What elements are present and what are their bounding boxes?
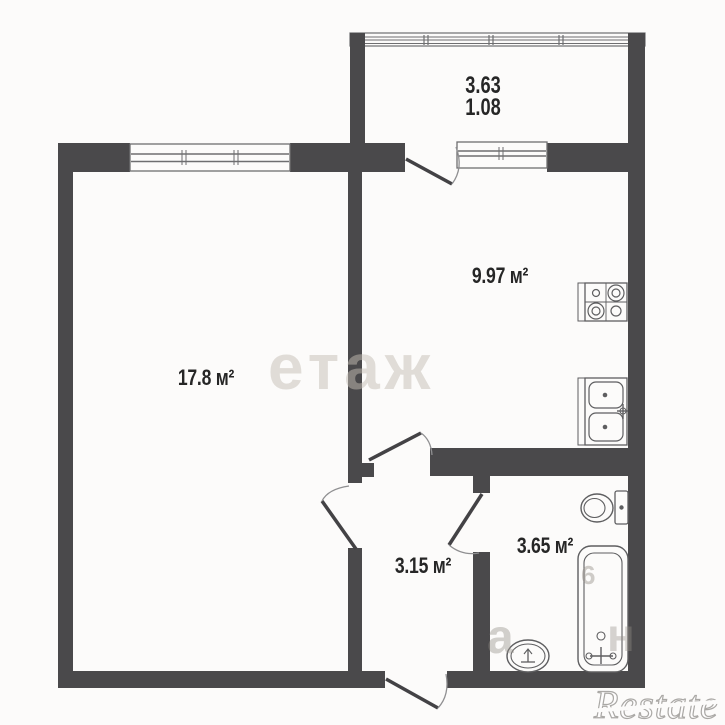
kitchen-area-label: 9.97 м²: [472, 263, 528, 289]
living-room-floor: [73, 172, 348, 670]
balcony-left-post: [350, 33, 365, 143]
kitchen-window: [457, 142, 547, 168]
left-exterior-wall: [58, 143, 73, 688]
bathroom-area-label: 3.65 м²: [517, 533, 573, 559]
balcony-depth-dimension: 1.08: [465, 94, 501, 122]
bathroom-sink-icon: [507, 640, 549, 672]
hallway-area-label: 3.15 м²: [395, 553, 451, 579]
right-exterior-wall: [628, 143, 645, 688]
floor-plan-canvas: 3.63 1.08 17.8 м² 9.97 м² 3.15 м² 3.65 м…: [0, 0, 725, 725]
bottom-wall-right-segment: [447, 671, 645, 688]
bathroom-wall-lower: [473, 552, 490, 671]
entrance-door-leaf: [386, 679, 438, 708]
toilet-icon: [581, 491, 628, 524]
entrance-door-swing-arc: [438, 674, 447, 708]
central-wall-upper: [348, 172, 362, 483]
kitchen-door-jamb: [362, 463, 374, 477]
floor-plan-drawing: [0, 0, 725, 725]
balcony-glazing-window: [350, 33, 645, 46]
bathtub-icon: [578, 546, 628, 672]
bathroom-wall-block: [473, 476, 490, 493]
stove-icon: [578, 283, 627, 321]
top-wall-mid-segment: [290, 143, 405, 172]
central-wall-lower: [348, 548, 362, 671]
balcony-right-post: [628, 33, 645, 143]
living-room-area-label: 17.8 м²: [178, 365, 234, 391]
bottom-wall-left-segment: [58, 671, 385, 688]
kitchen-sink-icon: [578, 378, 628, 445]
kitchen-bathroom-divider-wall: [430, 448, 628, 476]
entrance-door: [386, 674, 447, 708]
living-room-window: [130, 144, 290, 171]
